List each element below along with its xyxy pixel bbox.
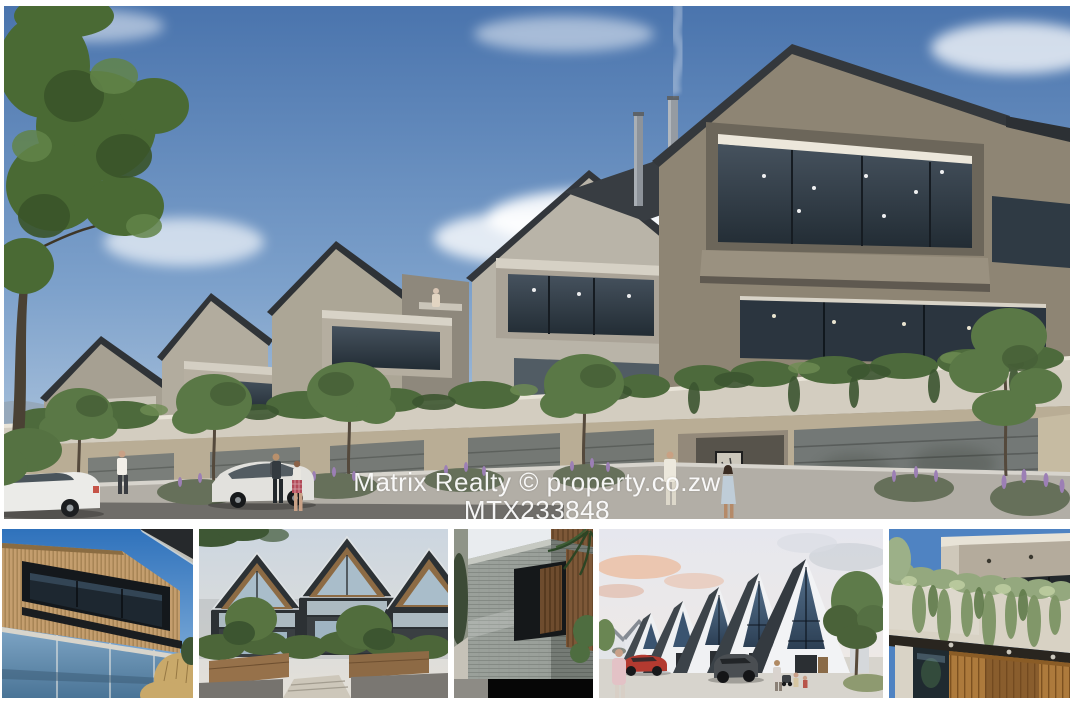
thumbnail-1-render bbox=[2, 529, 193, 698]
thumbnail-2[interactable] bbox=[199, 529, 448, 698]
thumbnail-4-render bbox=[599, 529, 883, 698]
thumbnail-1[interactable] bbox=[2, 529, 193, 698]
thumbnail-3[interactable] bbox=[454, 529, 593, 698]
thumbnail-5[interactable] bbox=[889, 529, 1070, 698]
main-photo-render: 38 bbox=[4, 6, 1070, 519]
thumbnail-4[interactable] bbox=[599, 529, 883, 698]
photo-collage: 38 bbox=[0, 0, 1070, 707]
thumbnail-strip bbox=[0, 529, 1070, 698]
thumbnail-2-render bbox=[199, 529, 448, 698]
main-photo[interactable]: 38 bbox=[4, 6, 1070, 519]
thumbnail-3-render bbox=[454, 529, 593, 698]
thumbnail-5-render bbox=[889, 529, 1070, 698]
